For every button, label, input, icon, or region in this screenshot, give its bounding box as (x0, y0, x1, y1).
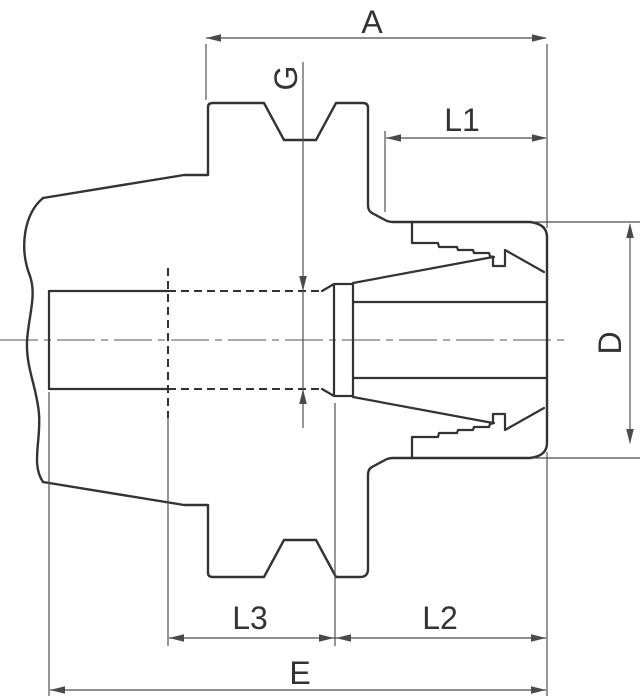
dim-l1-label: L1 (444, 102, 480, 138)
dim-l3-arrow-right (319, 634, 334, 642)
dim-e-arrow-left (50, 686, 65, 694)
dim-e-arrow-right (531, 686, 546, 694)
dim-l3-label: L3 (232, 600, 268, 636)
dim-d-label: D (592, 331, 628, 354)
dim-l1-arrow-right (532, 134, 547, 142)
dim-l2-arrow-left (336, 634, 351, 642)
collet-taper-upper (353, 250, 544, 283)
technical-drawing-canvas: A G L1 D L3 L2 E (0, 0, 640, 700)
dim-d-arrow-top (626, 223, 634, 238)
dim-g-arrow-lower (299, 389, 307, 404)
dim-l3-l2-line (168, 403, 547, 696)
dim-l1-arrow-left (386, 134, 401, 142)
dim-l2-label: L2 (422, 600, 458, 636)
technical-drawing-page: A G L1 D L3 L2 E (0, 0, 640, 700)
dim-g-label: G (268, 66, 304, 91)
dim-l1-line (385, 131, 546, 212)
dim-l2-arrow-right (531, 634, 546, 642)
dim-d-arrow-bottom (626, 429, 634, 444)
dim-g-arrow-upper (299, 276, 307, 291)
dim-a-label: A (361, 4, 383, 40)
collet-taper-lower (353, 397, 544, 430)
dim-e-label: E (289, 655, 310, 691)
dim-a-arrow-left (206, 34, 221, 42)
nut-thread-lower (412, 423, 494, 458)
dim-a-line (206, 38, 547, 228)
dim-l3-arrow-left (169, 634, 184, 642)
dim-a-arrow-right (532, 34, 547, 42)
dim-e-line (49, 392, 546, 696)
nut-thread-upper (412, 222, 494, 257)
